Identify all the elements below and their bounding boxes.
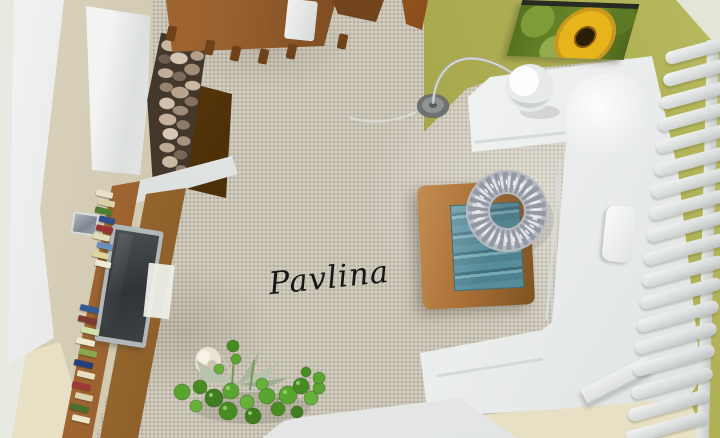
lamp-cable xyxy=(350,112,416,121)
room-render: Pavlina xyxy=(0,0,720,438)
arc-lamp xyxy=(0,0,720,438)
